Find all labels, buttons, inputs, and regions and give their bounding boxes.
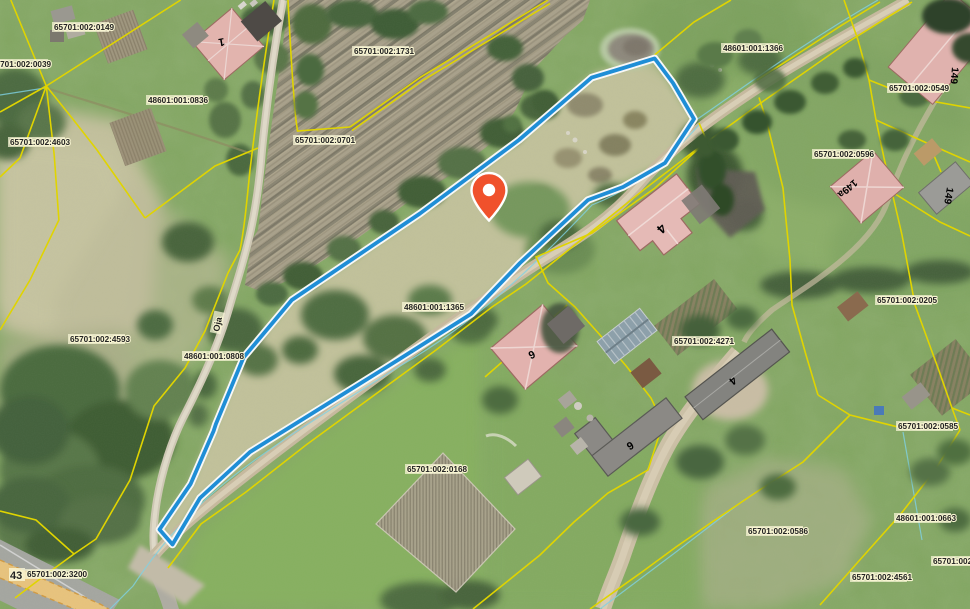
svg-text:48601:001:0663: 48601:001:0663 (896, 514, 957, 523)
svg-text:65701:002:0149: 65701:002:0149 (54, 23, 115, 32)
svg-text:65701:002:4561: 65701:002:4561 (852, 573, 913, 582)
svg-text:65701:002:4593: 65701:002:4593 (70, 335, 131, 344)
svg-text:65701:002:0585: 65701:002:0585 (898, 422, 959, 431)
svg-text:65701:002:0701: 65701:002:0701 (295, 136, 356, 145)
svg-text:65701:002:4: 65701:002:4 (933, 557, 970, 566)
svg-text:65701:002:0586: 65701:002:0586 (748, 527, 809, 536)
svg-text:65701:002:0549: 65701:002:0549 (889, 84, 950, 93)
svg-text:48601:001:1366: 48601:001:1366 (723, 44, 784, 53)
svg-text:65701:002:0596: 65701:002:0596 (814, 150, 875, 159)
svg-text:149: 149 (948, 67, 960, 85)
svg-text:48601:001:0836: 48601:001:0836 (148, 96, 209, 105)
svg-text:65701:002:4271: 65701:002:4271 (674, 337, 735, 346)
svg-text:65701:002:3200: 65701:002:3200 (27, 570, 88, 579)
svg-text:65701:002:0205: 65701:002:0205 (877, 296, 938, 305)
svg-text:43: 43 (10, 570, 22, 582)
svg-text:65701:002:1731: 65701:002:1731 (354, 47, 415, 56)
svg-text:65701:002:0039: 65701:002:0039 (0, 60, 52, 69)
svg-text:65701:002:4603: 65701:002:4603 (10, 138, 71, 147)
svg-text:48601:001:1365: 48601:001:1365 (404, 303, 465, 312)
svg-text:65701:002:0168: 65701:002:0168 (407, 465, 468, 474)
svg-text:48601:001:0808: 48601:001:0808 (184, 352, 245, 361)
